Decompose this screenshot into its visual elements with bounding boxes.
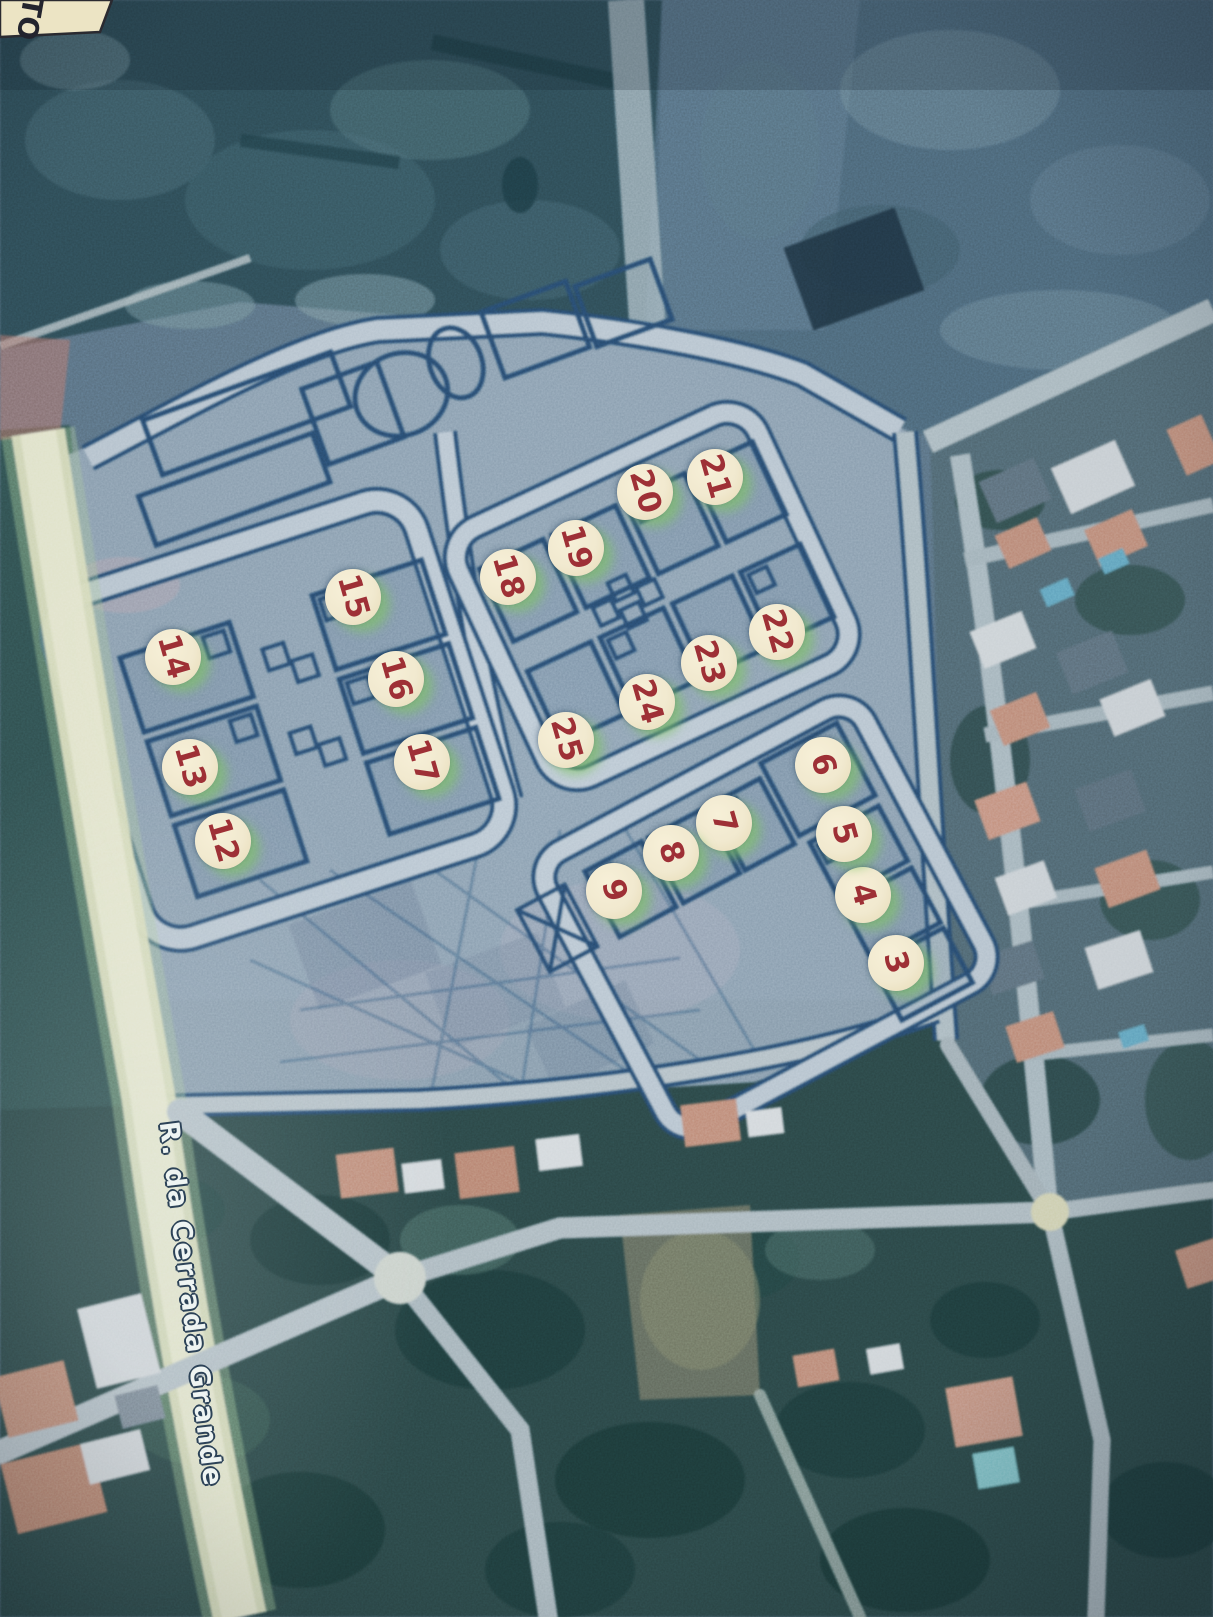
- top-shade: [0, 0, 1213, 90]
- legend-corner-text: TO: [10, 0, 50, 43]
- aerial-photo: TO: [0, 0, 1213, 1617]
- photo-vignette: [0, 0, 1213, 1617]
- printed-aerial-map-photo: TO 34567891213141516171819202122232425 R…: [0, 0, 1213, 1617]
